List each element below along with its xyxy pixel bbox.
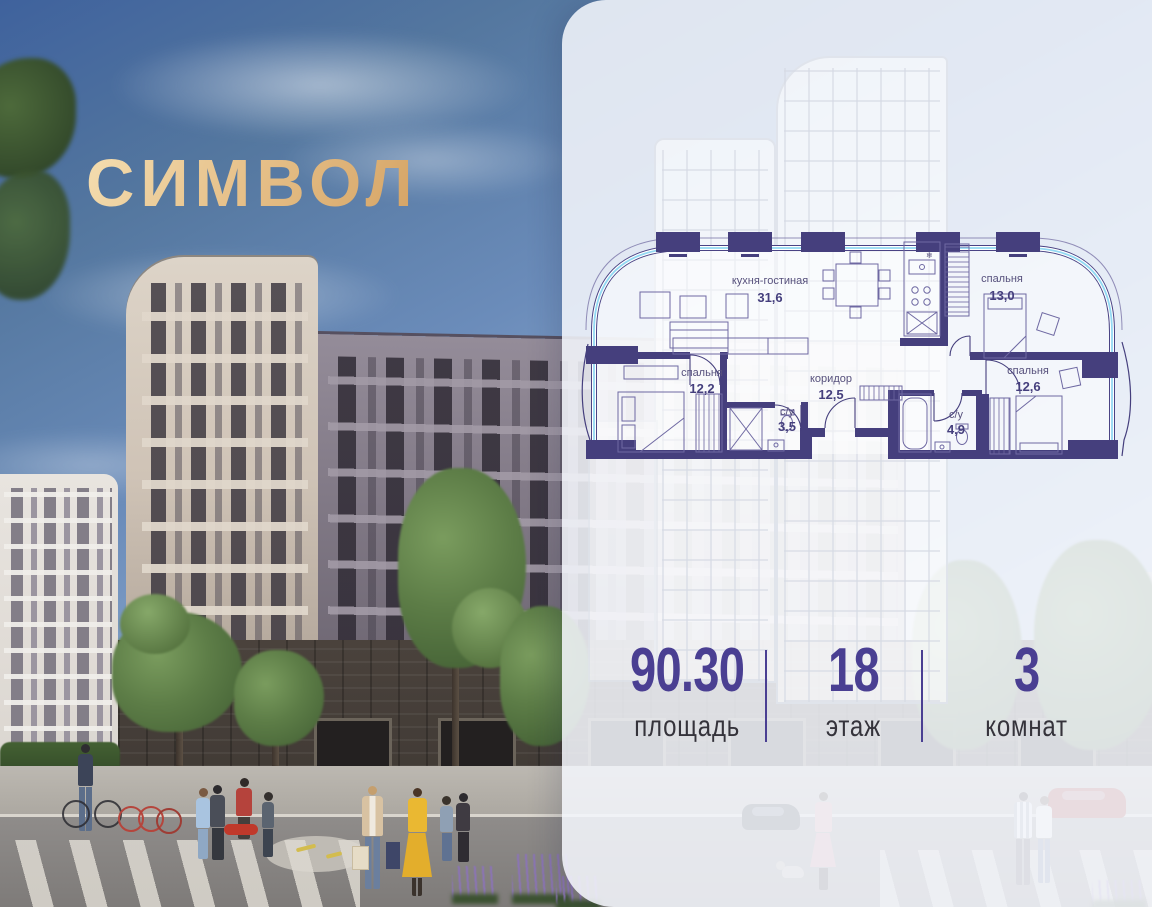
lavender-flowers [452,866,498,900]
room-area: 31,6 [757,290,782,305]
floor-plan: ❄ кухня-гостиная 31,6 спальня 13,0 спаль… [578,226,1135,468]
person-beige-woman [362,786,383,889]
room-area: 12,6 [1015,379,1040,394]
room-label: коридор [810,373,852,385]
stat-area-label: площадь [634,712,740,742]
ac-unit-icon: ❄ [926,251,933,260]
info-panel: ❄ кухня-гостиная 31,6 спальня 13,0 спаль… [562,0,1152,907]
room-label: кухня-гостиная [732,275,808,287]
room-label: с/у [949,409,964,421]
room-label: спальня [681,367,723,379]
stat-rooms-label: комнат [986,712,1068,742]
room-label: спальня [981,273,1023,285]
room-label: спальня [1007,365,1049,377]
person-couple-man [210,785,225,860]
room-area: 13,0 [989,288,1014,303]
person-couple-woman [196,788,210,859]
room-area: 12,2 [689,381,714,396]
shopping-bag-kraft [352,846,369,870]
brand-logo: СИМВОЛ [86,150,446,217]
parked-bike-wheel [156,808,182,834]
stat-rooms: 3 комнат [935,640,1119,742]
stat-floor-label: этаж [825,712,880,742]
promo-card: СИМВОЛ [0,0,1152,907]
shopping-bag-navy [386,842,400,869]
stat-rooms-value: 3 [1014,640,1039,702]
person-background [262,792,274,857]
bicycle-wheel [62,800,90,828]
brand-logo-text: СИМВОЛ [86,146,419,221]
person-yellow-dress-woman [402,788,432,896]
scooter [224,824,258,835]
room-area: 4,9 [947,422,965,437]
apartment-interior [592,246,1114,454]
person-background [456,793,470,862]
person-background [440,796,453,861]
room-area: 12,5 [818,387,843,402]
room-area: 3,5 [778,419,796,434]
room-label: с/у [780,406,795,418]
